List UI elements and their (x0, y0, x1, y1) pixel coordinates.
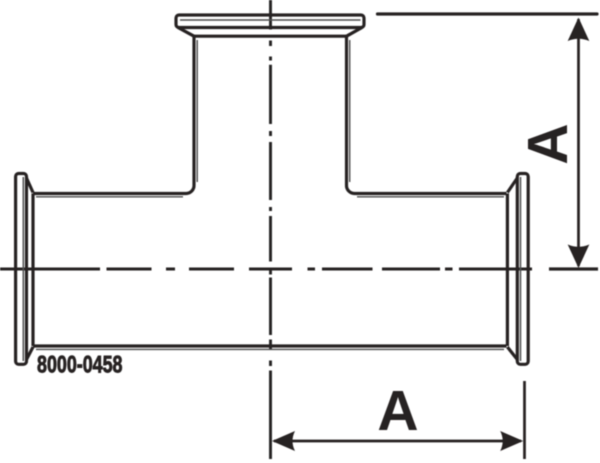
svg-text:A: A (377, 379, 418, 443)
svg-text:A: A (516, 123, 580, 164)
svg-text:8000-0458: 8000-0458 (37, 351, 123, 378)
